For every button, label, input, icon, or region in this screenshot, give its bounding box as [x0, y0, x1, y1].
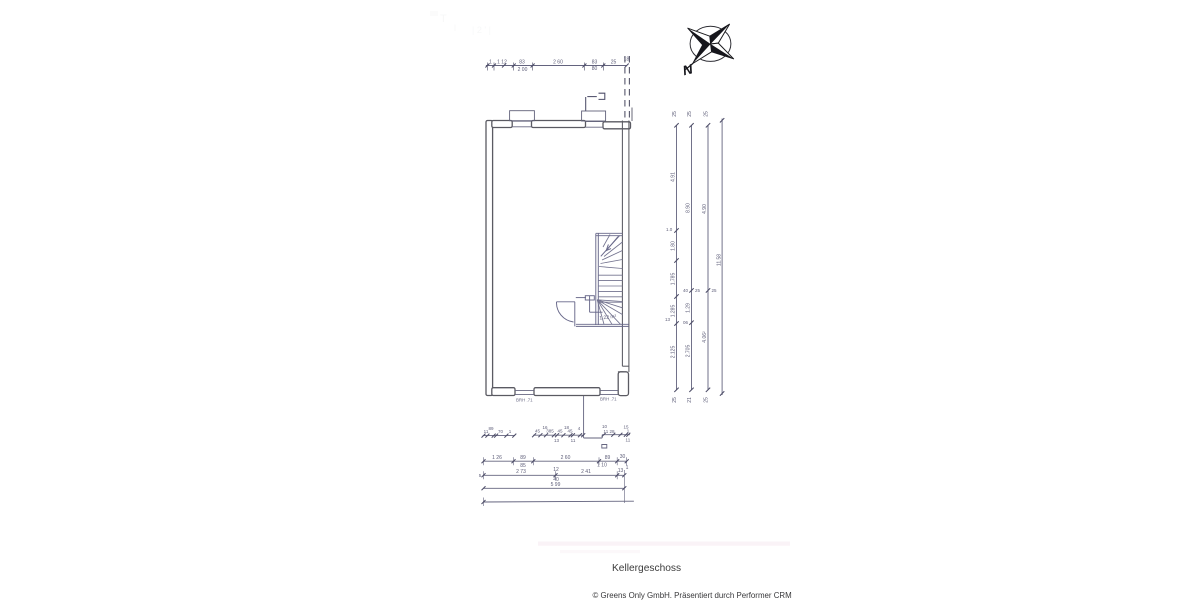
svg-text:1 26: 1 26 — [492, 455, 502, 461]
svg-text:385: 385 — [546, 429, 554, 434]
svg-text:45: 45 — [567, 429, 573, 434]
svg-text:89: 89 — [488, 426, 494, 431]
svg-text:2.125: 2.125 — [671, 346, 677, 359]
svg-text:4.06²: 4.06² — [702, 331, 708, 343]
svg-text:25: 25 — [672, 111, 678, 117]
svg-text:83: 83 — [519, 60, 525, 66]
svg-text:1.29: 1.29 — [686, 303, 692, 313]
svg-text:4.91: 4.91 — [671, 172, 677, 182]
svg-text:l: l — [454, 23, 456, 33]
svg-text:1.0: 1.0 — [666, 227, 673, 232]
svg-text:1: 1 — [626, 465, 629, 471]
svg-text:4.90: 4.90 — [702, 204, 708, 214]
svg-text:5 99: 5 99 — [551, 482, 561, 488]
svg-text:83: 83 — [592, 60, 598, 66]
svg-text:80: 80 — [592, 66, 598, 72]
svg-text:2 73: 2 73 — [516, 469, 526, 475]
svg-text:21: 21 — [687, 397, 693, 403]
svg-text:T: T — [440, 13, 447, 25]
svg-text:89: 89 — [605, 455, 611, 461]
svg-text:11: 11 — [571, 438, 576, 443]
svg-text:40: 40 — [683, 288, 689, 293]
svg-text:45: 45 — [535, 429, 541, 434]
svg-text:8.90: 8.90 — [686, 203, 692, 213]
svg-text:13: 13 — [665, 317, 671, 322]
svg-text:1: 1 — [628, 438, 631, 443]
svg-text:89: 89 — [520, 455, 526, 461]
svg-text:70: 70 — [498, 429, 504, 434]
svg-text:1.285: 1.285 — [671, 305, 677, 318]
svg-text:13: 13 — [554, 438, 560, 443]
svg-text:85: 85 — [520, 463, 526, 469]
svg-text:5: 5 — [479, 473, 482, 478]
svg-text:25: 25 — [611, 60, 617, 66]
svg-text:2 60: 2 60 — [553, 60, 563, 66]
svg-text:1 12: 1 12 — [497, 60, 507, 66]
svg-text:11 28: 11 28 — [604, 429, 615, 434]
svg-text:25: 25 — [695, 288, 701, 293]
svg-text:25: 25 — [687, 111, 693, 117]
svg-text:12: 12 — [553, 467, 559, 473]
svg-text:06: 06 — [683, 320, 689, 325]
svg-text:13: 13 — [618, 468, 624, 474]
svg-text:© Greens Only GmbH. Präsentier: © Greens Only GmbH. Präsentiert durch Pe… — [593, 591, 792, 600]
svg-text:1.785: 1.785 — [671, 273, 677, 286]
svg-text:4: 4 — [578, 426, 581, 431]
svg-text:11.58: 11.58 — [717, 254, 723, 266]
svg-text:1 10: 1 10 — [597, 462, 607, 468]
svg-text:1: 1 — [627, 429, 630, 434]
svg-text:1.80: 1.80 — [671, 241, 677, 251]
svg-text:30: 30 — [620, 454, 626, 460]
svg-text:1: 1 — [509, 429, 512, 434]
svg-text:1: 1 — [489, 60, 492, 66]
svg-text:Kellergeschoss: Kellergeschoss — [612, 563, 681, 574]
svg-text:2.705: 2.705 — [686, 345, 692, 358]
svg-text:BRH .71: BRH .71 — [516, 397, 533, 402]
svg-text:45: 45 — [557, 429, 563, 434]
svg-text:25: 25 — [672, 397, 678, 403]
svg-text:25: 25 — [704, 111, 710, 117]
svg-text:| 2 ' |: | 2 ' | — [472, 25, 491, 35]
svg-text:25: 25 — [704, 397, 710, 403]
svg-text:2 00: 2 00 — [518, 67, 528, 73]
svg-text:2 41: 2 41 — [581, 469, 591, 475]
svg-text:BRH .71: BRH .71 — [600, 397, 617, 402]
svg-text:2 60: 2 60 — [561, 455, 571, 461]
svg-text:25: 25 — [712, 288, 718, 293]
